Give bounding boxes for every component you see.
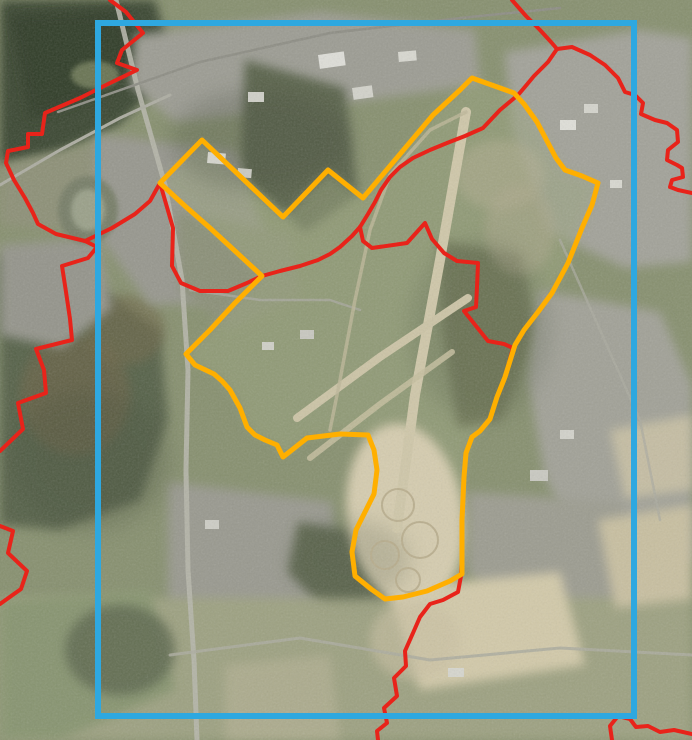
photo-grain-texture [0, 0, 692, 740]
aerial-map [0, 0, 692, 740]
map-viewport[interactable] [0, 0, 692, 740]
